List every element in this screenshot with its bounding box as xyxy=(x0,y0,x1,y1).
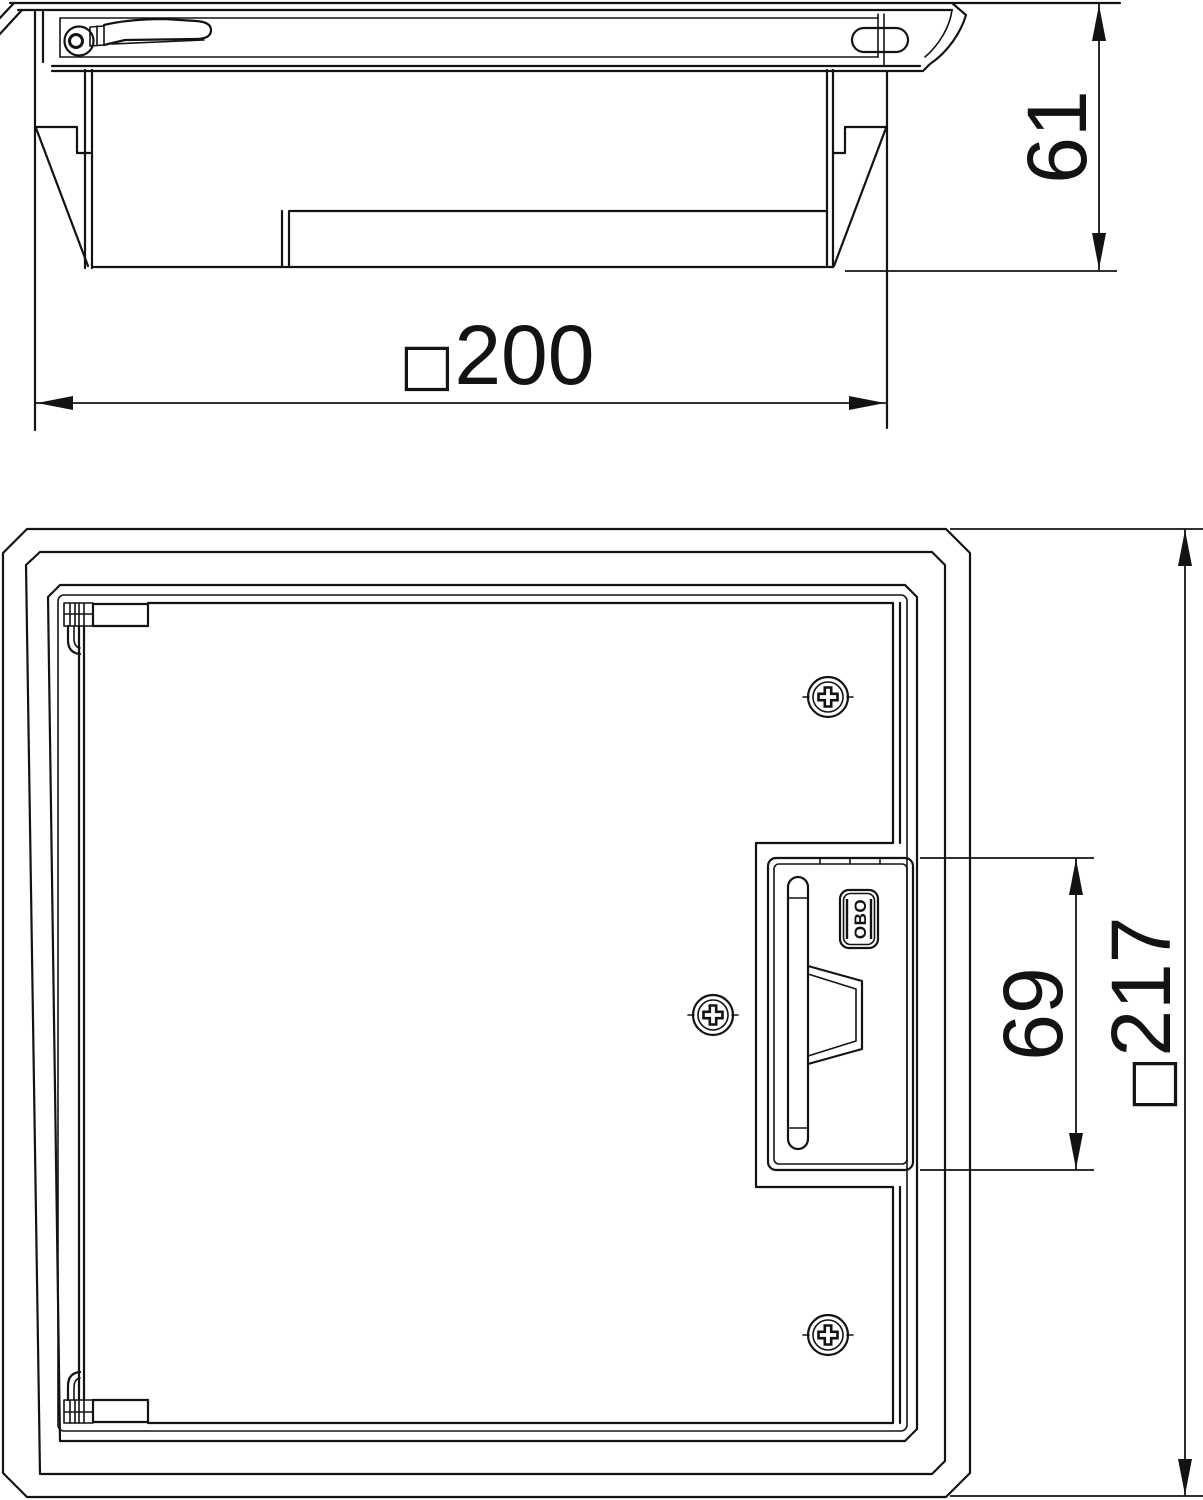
obo-logo: OBO xyxy=(840,890,878,948)
door-panel-outer xyxy=(48,585,917,1441)
lift-slot xyxy=(788,877,808,1149)
phillips-cross-icon xyxy=(704,1006,723,1025)
door-panel-inner xyxy=(58,595,907,1431)
arrow-up-icon xyxy=(1069,859,1083,895)
floor-box-drawing: 61 □200 xyxy=(0,0,1203,1500)
arrow-down-icon xyxy=(1178,1459,1192,1495)
screw-center xyxy=(688,995,738,1035)
arrow-up-icon xyxy=(1178,530,1192,566)
recessed-tray: OBO xyxy=(768,858,913,1170)
plan-view: OBO 69 xyxy=(3,529,1203,1497)
obo-logo-text: OBO xyxy=(851,899,870,939)
dimension-height-61: 61 xyxy=(845,4,1117,271)
dim-label-61: 61 xyxy=(1010,90,1104,183)
door-leaf xyxy=(79,603,900,1423)
arrow-down-icon xyxy=(1069,1133,1083,1169)
section-view: 61 □200 xyxy=(0,3,1120,430)
phillips-cross-icon xyxy=(819,1326,838,1345)
arrow-left-icon xyxy=(37,396,73,410)
hinge-bottom xyxy=(64,1372,148,1423)
dim-label-200: □200 xyxy=(400,308,595,402)
arrow-right-icon xyxy=(849,396,885,410)
outer-frame xyxy=(3,529,970,1497)
locking-lever xyxy=(65,19,212,56)
cover-slot xyxy=(852,28,908,52)
screw-top-right xyxy=(803,677,853,717)
arrow-up-icon xyxy=(1092,5,1106,41)
cover-profile xyxy=(0,3,1120,71)
dim-label-217: □217 xyxy=(1094,917,1188,1112)
phillips-cross-icon xyxy=(819,688,838,707)
technical-drawing-page: 61 □200 xyxy=(0,0,1203,1500)
dimension-width-200: □200 xyxy=(36,308,886,410)
latch-lever xyxy=(808,966,862,1064)
dim-label-69: 69 xyxy=(986,967,1080,1060)
hinge-top xyxy=(64,603,148,654)
screw-bottom xyxy=(803,1315,853,1355)
arrow-down-icon xyxy=(1092,233,1106,269)
